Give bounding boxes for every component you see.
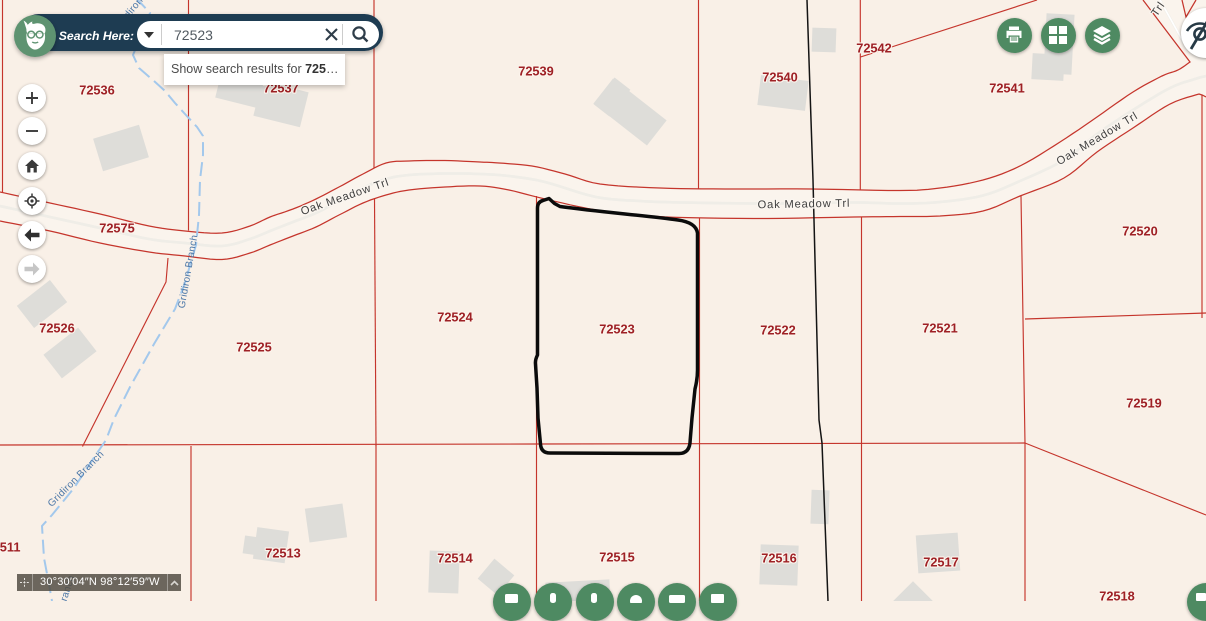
svg-text:72520: 72520 [1122,224,1158,239]
svg-text:72524: 72524 [437,310,473,325]
svg-text:72514: 72514 [437,551,473,566]
svg-text:72575: 72575 [99,221,135,236]
svg-text:72541: 72541 [989,81,1025,96]
svg-text:72540: 72540 [762,70,798,85]
svg-text:72519: 72519 [1126,396,1162,411]
svg-text:72523: 72523 [599,322,635,337]
svg-text:72517: 72517 [923,555,959,570]
svg-text:72516: 72516 [761,551,797,566]
svg-text:Oak Meadow Trl: Oak Meadow Trl [758,198,851,212]
svg-text:72515: 72515 [599,550,635,565]
svg-text:72539: 72539 [518,64,554,79]
svg-text:72518: 72518 [1099,589,1135,602]
svg-text:72536: 72536 [79,83,115,98]
svg-text:72542: 72542 [856,41,892,56]
svg-text:72511: 72511 [0,540,20,555]
svg-text:72526: 72526 [39,321,75,336]
svg-text:72513: 72513 [265,546,301,561]
svg-text:72522: 72522 [760,323,796,338]
svg-text:72525: 72525 [236,340,272,355]
svg-text:72521: 72521 [922,321,958,336]
